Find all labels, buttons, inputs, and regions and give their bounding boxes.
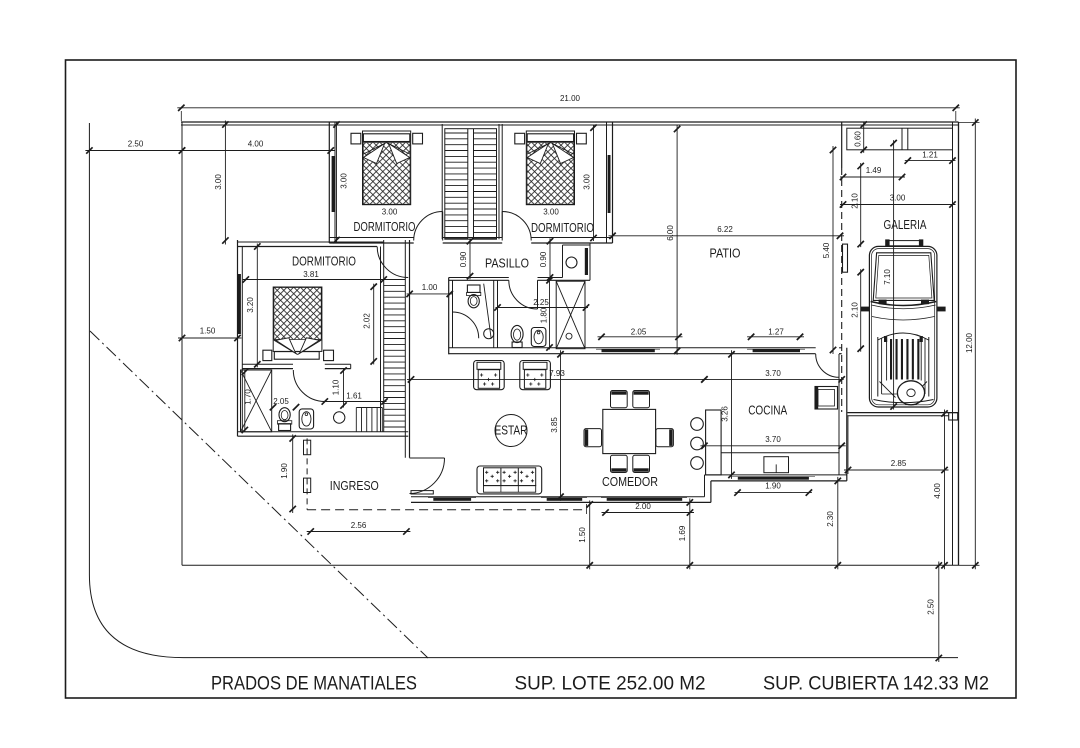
svg-text:0.90: 0.90 bbox=[459, 251, 468, 267]
svg-text:1.00: 1.00 bbox=[422, 283, 438, 292]
svg-text:COMEDOR: COMEDOR bbox=[602, 475, 658, 489]
svg-text:5.40: 5.40 bbox=[822, 242, 831, 258]
svg-text:0.60: 0.60 bbox=[854, 131, 863, 147]
svg-text:PASILLO: PASILLO bbox=[485, 257, 529, 271]
svg-text:1.21: 1.21 bbox=[922, 150, 938, 159]
svg-text:3.70: 3.70 bbox=[765, 369, 781, 378]
svg-text:2.85: 2.85 bbox=[891, 459, 907, 468]
svg-text:2.02: 2.02 bbox=[363, 313, 372, 329]
svg-text:2.10: 2.10 bbox=[851, 193, 860, 209]
svg-text:GALERIA: GALERIA bbox=[884, 218, 928, 232]
svg-text:1.90: 1.90 bbox=[765, 482, 781, 491]
svg-text:12.00: 12.00 bbox=[965, 332, 974, 353]
svg-text:21.00: 21.00 bbox=[560, 94, 581, 103]
svg-text:DORMITORIO: DORMITORIO bbox=[531, 221, 594, 235]
svg-text:2.30: 2.30 bbox=[826, 511, 835, 527]
svg-text:1.50: 1.50 bbox=[200, 327, 216, 336]
svg-text:1.70: 1.70 bbox=[244, 389, 253, 405]
svg-text:7.93: 7.93 bbox=[549, 369, 565, 378]
svg-text:COCINA: COCINA bbox=[748, 403, 788, 417]
svg-text:3.70: 3.70 bbox=[765, 435, 781, 444]
svg-text:1.10: 1.10 bbox=[332, 379, 341, 395]
svg-text:2.50: 2.50 bbox=[927, 599, 936, 615]
svg-text:ESTAR: ESTAR bbox=[495, 424, 528, 438]
svg-text:PATIO: PATIO bbox=[710, 247, 741, 261]
svg-text:1.69: 1.69 bbox=[678, 525, 687, 541]
svg-text:3.26: 3.26 bbox=[720, 406, 729, 422]
svg-text:1.50: 1.50 bbox=[578, 527, 587, 543]
svg-text:3.00: 3.00 bbox=[543, 208, 559, 217]
svg-text:2.00: 2.00 bbox=[635, 502, 651, 511]
svg-text:1.90: 1.90 bbox=[280, 463, 289, 479]
svg-text:1.61: 1.61 bbox=[346, 392, 362, 401]
svg-text:2.05: 2.05 bbox=[631, 327, 647, 336]
svg-text:1.49: 1.49 bbox=[866, 166, 882, 175]
svg-text:3.00: 3.00 bbox=[583, 174, 592, 190]
svg-text:2.10: 2.10 bbox=[851, 302, 860, 318]
svg-text:3.81: 3.81 bbox=[303, 270, 319, 279]
svg-text:0.90: 0.90 bbox=[539, 251, 548, 267]
svg-text:PRADOS DE MANATIALES: PRADOS DE MANATIALES bbox=[211, 674, 417, 695]
svg-text:1.80: 1.80 bbox=[539, 307, 548, 323]
svg-text:3.20: 3.20 bbox=[246, 297, 255, 313]
svg-text:DORMITORIO: DORMITORIO bbox=[292, 254, 356, 268]
svg-text:2.56: 2.56 bbox=[351, 521, 367, 530]
svg-text:2.25: 2.25 bbox=[533, 298, 549, 307]
svg-text:3.00: 3.00 bbox=[382, 208, 398, 217]
svg-text:SUP. LOTE 252.00 M2: SUP. LOTE 252.00 M2 bbox=[515, 674, 706, 695]
svg-text:4.00: 4.00 bbox=[933, 483, 942, 499]
svg-text:3.00: 3.00 bbox=[214, 174, 223, 190]
svg-text:3.00: 3.00 bbox=[890, 194, 906, 203]
svg-text:2.50: 2.50 bbox=[128, 140, 144, 149]
svg-text:6.00: 6.00 bbox=[666, 225, 675, 241]
svg-text:3.00: 3.00 bbox=[340, 173, 349, 189]
svg-text:SUP. CUBIERTA 142.33 M2: SUP. CUBIERTA 142.33 M2 bbox=[763, 674, 989, 695]
svg-text:4.00: 4.00 bbox=[248, 140, 264, 149]
svg-text:7.10: 7.10 bbox=[883, 269, 892, 285]
svg-text:6.22: 6.22 bbox=[717, 225, 733, 234]
svg-text:3.85: 3.85 bbox=[550, 417, 559, 433]
svg-text:1.27: 1.27 bbox=[768, 327, 784, 336]
svg-text:INGRESO: INGRESO bbox=[330, 479, 379, 493]
svg-text:DORMITORIO: DORMITORIO bbox=[354, 220, 416, 234]
